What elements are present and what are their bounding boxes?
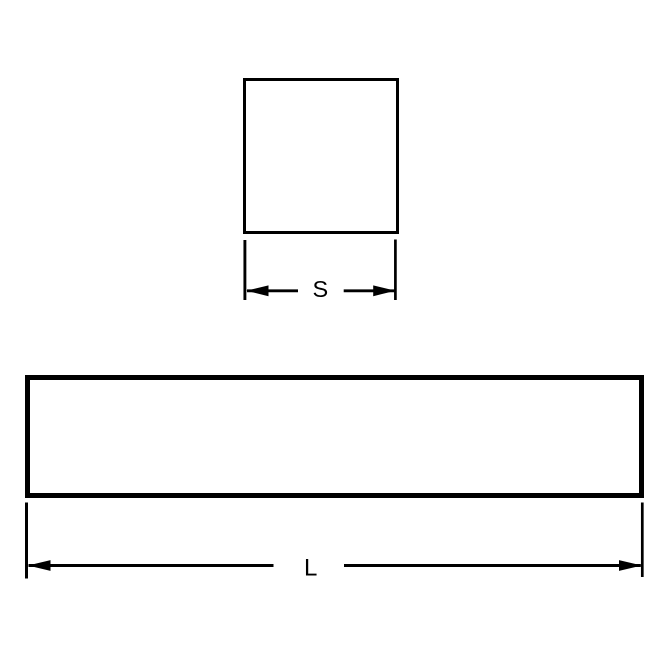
svg-text:S: S [312,276,328,302]
svg-text:L: L [304,555,317,582]
